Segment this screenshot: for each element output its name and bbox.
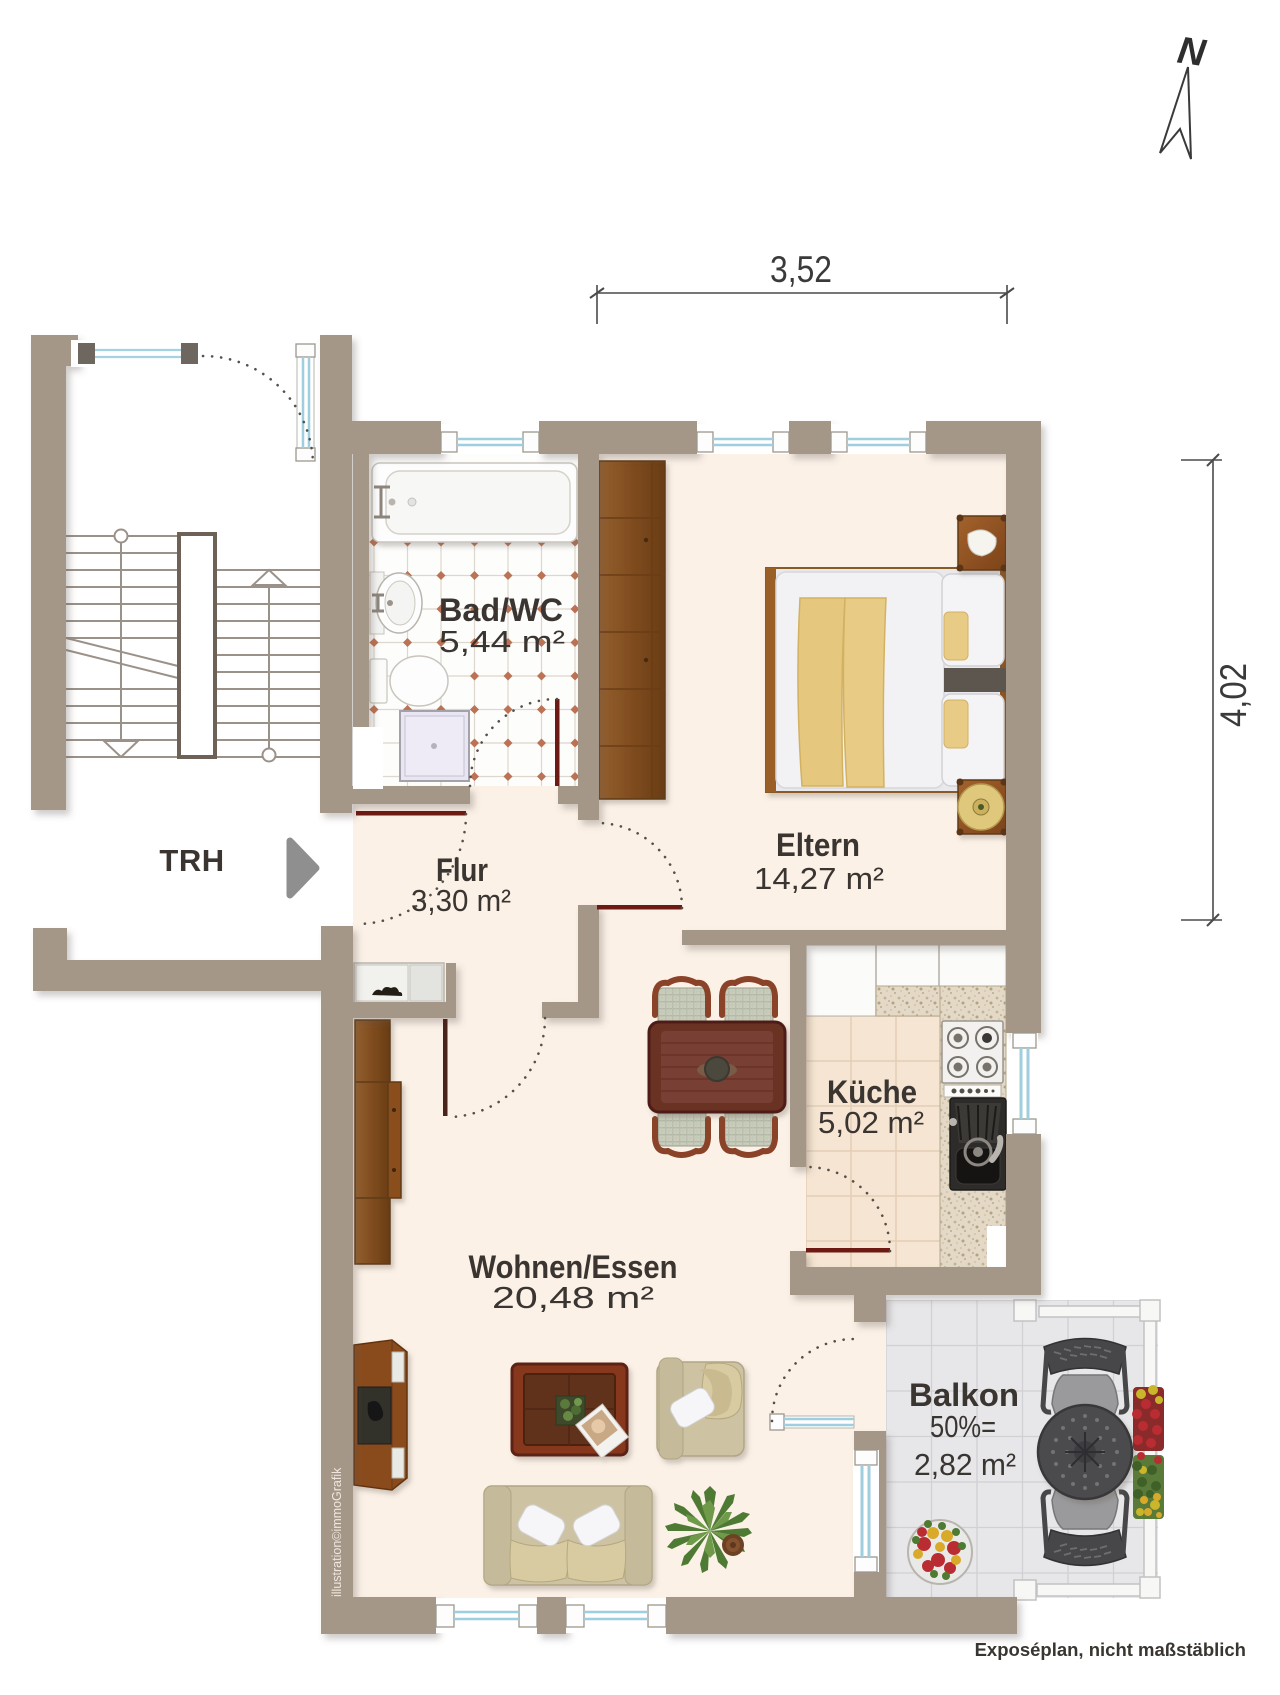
svg-text:3,52: 3,52 xyxy=(770,249,832,290)
svg-text:5,44 m²: 5,44 m² xyxy=(439,624,565,659)
svg-text:TRH: TRH xyxy=(159,843,224,878)
svg-text:illustration©immoGrafik: illustration©immoGrafik xyxy=(330,1467,344,1597)
svg-text:14,27 m²: 14,27 m² xyxy=(754,861,884,896)
svg-text:2,82 m²: 2,82 m² xyxy=(914,1447,1016,1482)
svg-text:50%=: 50%= xyxy=(930,1409,996,1444)
svg-text:Bad/WC: Bad/WC xyxy=(439,592,563,628)
svg-text:4,02: 4,02 xyxy=(1213,663,1254,727)
svg-text:Exposéplan, nicht maßstäblich: Exposéplan, nicht maßstäblich xyxy=(975,1639,1246,1660)
svg-text:Balkon: Balkon xyxy=(909,1377,1019,1413)
svg-text:3,30 m²: 3,30 m² xyxy=(411,883,511,918)
svg-text:Eltern: Eltern xyxy=(776,827,860,863)
svg-text:20,48 m²: 20,48 m² xyxy=(492,1280,654,1315)
svg-text:5,02 m²: 5,02 m² xyxy=(818,1105,924,1140)
